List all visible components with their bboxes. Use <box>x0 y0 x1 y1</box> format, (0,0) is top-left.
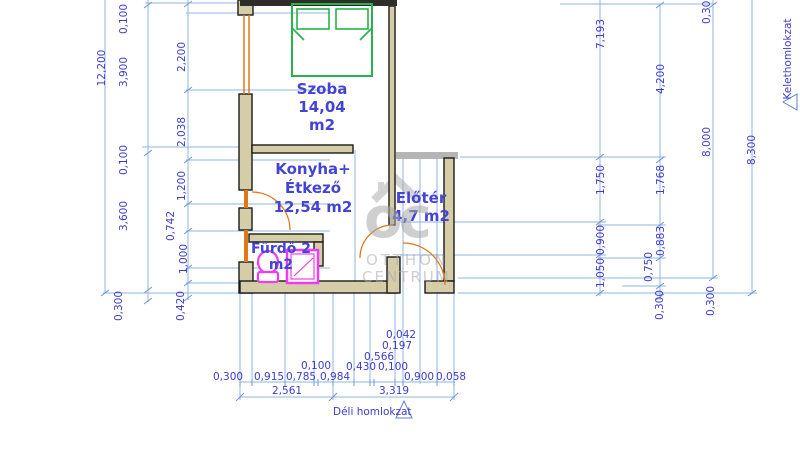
room-label-szoba: Szoba 14,04 m2 <box>282 80 362 134</box>
dim-bottom-total-1: 3,319 <box>379 385 409 397</box>
dim-left-total: 12,200 <box>96 50 108 87</box>
dim-bottom-row-5: 0,058 <box>436 371 466 383</box>
dim-bottom-row-4: 0,900 <box>404 371 434 383</box>
room-area: 12,54 m2 <box>273 198 353 217</box>
dim-left-outer-2: 0,100 <box>118 145 130 175</box>
dim-bottom-row-0: 0,300 <box>213 371 243 383</box>
dim-right2-4: 0,300 <box>654 290 666 320</box>
room-unit: m2 <box>282 116 362 134</box>
room-name: Étkező <box>273 179 353 198</box>
dim-left-inner-2: 1,200 <box>176 171 188 201</box>
room-label-konyha: Konyha+ Étkező 12,54 m2 <box>273 160 353 217</box>
dim-left-inner-0: 2,200 <box>176 42 188 72</box>
dim-left-outer-1: 3,900 <box>118 57 130 87</box>
dim-left-inner-4: 1,000 <box>178 244 190 274</box>
room-name: Fürdő 2 <box>246 241 316 257</box>
watermark-line1: OTTHON <box>366 251 448 269</box>
elevation-markers <box>396 94 797 418</box>
dim-bottom-row-3: 0,984 <box>320 371 350 383</box>
dim-right2-1: 1,768 <box>655 165 667 195</box>
watermark-logo: oc <box>364 193 428 245</box>
dim-right2-0: 4,200 <box>655 64 667 94</box>
dim-left-outer-0: 0,100 <box>118 4 130 34</box>
dim-right1-1: 1,750 <box>595 165 607 195</box>
dim-bottom-row-1: 0,915 <box>254 371 284 383</box>
dim-right-total: 8,300 <box>746 135 758 165</box>
room-area: 14,04 <box>282 98 362 116</box>
dim-right1-0: 7,193 <box>595 19 607 49</box>
dim-left-inner-3: 0,742 <box>165 211 177 241</box>
room-label-furdo: Fürdő 2 m2 <box>246 241 316 273</box>
south-elevation-label: Déli homlokzat <box>333 406 412 418</box>
room-name: Konyha+ <box>273 160 353 179</box>
dim-left-inner-5: 0,420 <box>175 291 187 321</box>
dim-bottom-row-2: 0,785 <box>286 371 316 383</box>
dim-left-outer-3: 3,600 <box>118 201 130 231</box>
dim-right3: 8,000 <box>701 127 713 157</box>
watermark-line2: CENTRUM <box>362 268 451 286</box>
room-name: Szoba <box>282 80 362 98</box>
room-area: m2 <box>246 257 316 273</box>
dim-right1-2: 0,900 <box>595 225 607 255</box>
east-elevation-label: Kelethomlokzat <box>782 18 794 99</box>
bed-icon <box>292 4 372 76</box>
dim-right2-3: 0,750 <box>643 252 655 282</box>
dim-bottom-total-0: 2,561 <box>272 385 302 397</box>
dim-right2-2: 0,883 <box>655 226 667 256</box>
dim-right3-bottom: 0,300 <box>705 286 717 316</box>
dim-left-outer-4: 0,300 <box>113 291 125 321</box>
dim-bottom-small-3: 0,430 <box>346 361 376 373</box>
dim-right3-top: 0,300 <box>701 0 713 24</box>
floorplan-page: Szoba 14,04 m2 Konyha+ Étkező 12,54 m2 E… <box>0 0 800 469</box>
dim-left-inner-1: 2,038 <box>176 117 188 147</box>
dim-right1-3: 1,050 <box>595 258 607 288</box>
